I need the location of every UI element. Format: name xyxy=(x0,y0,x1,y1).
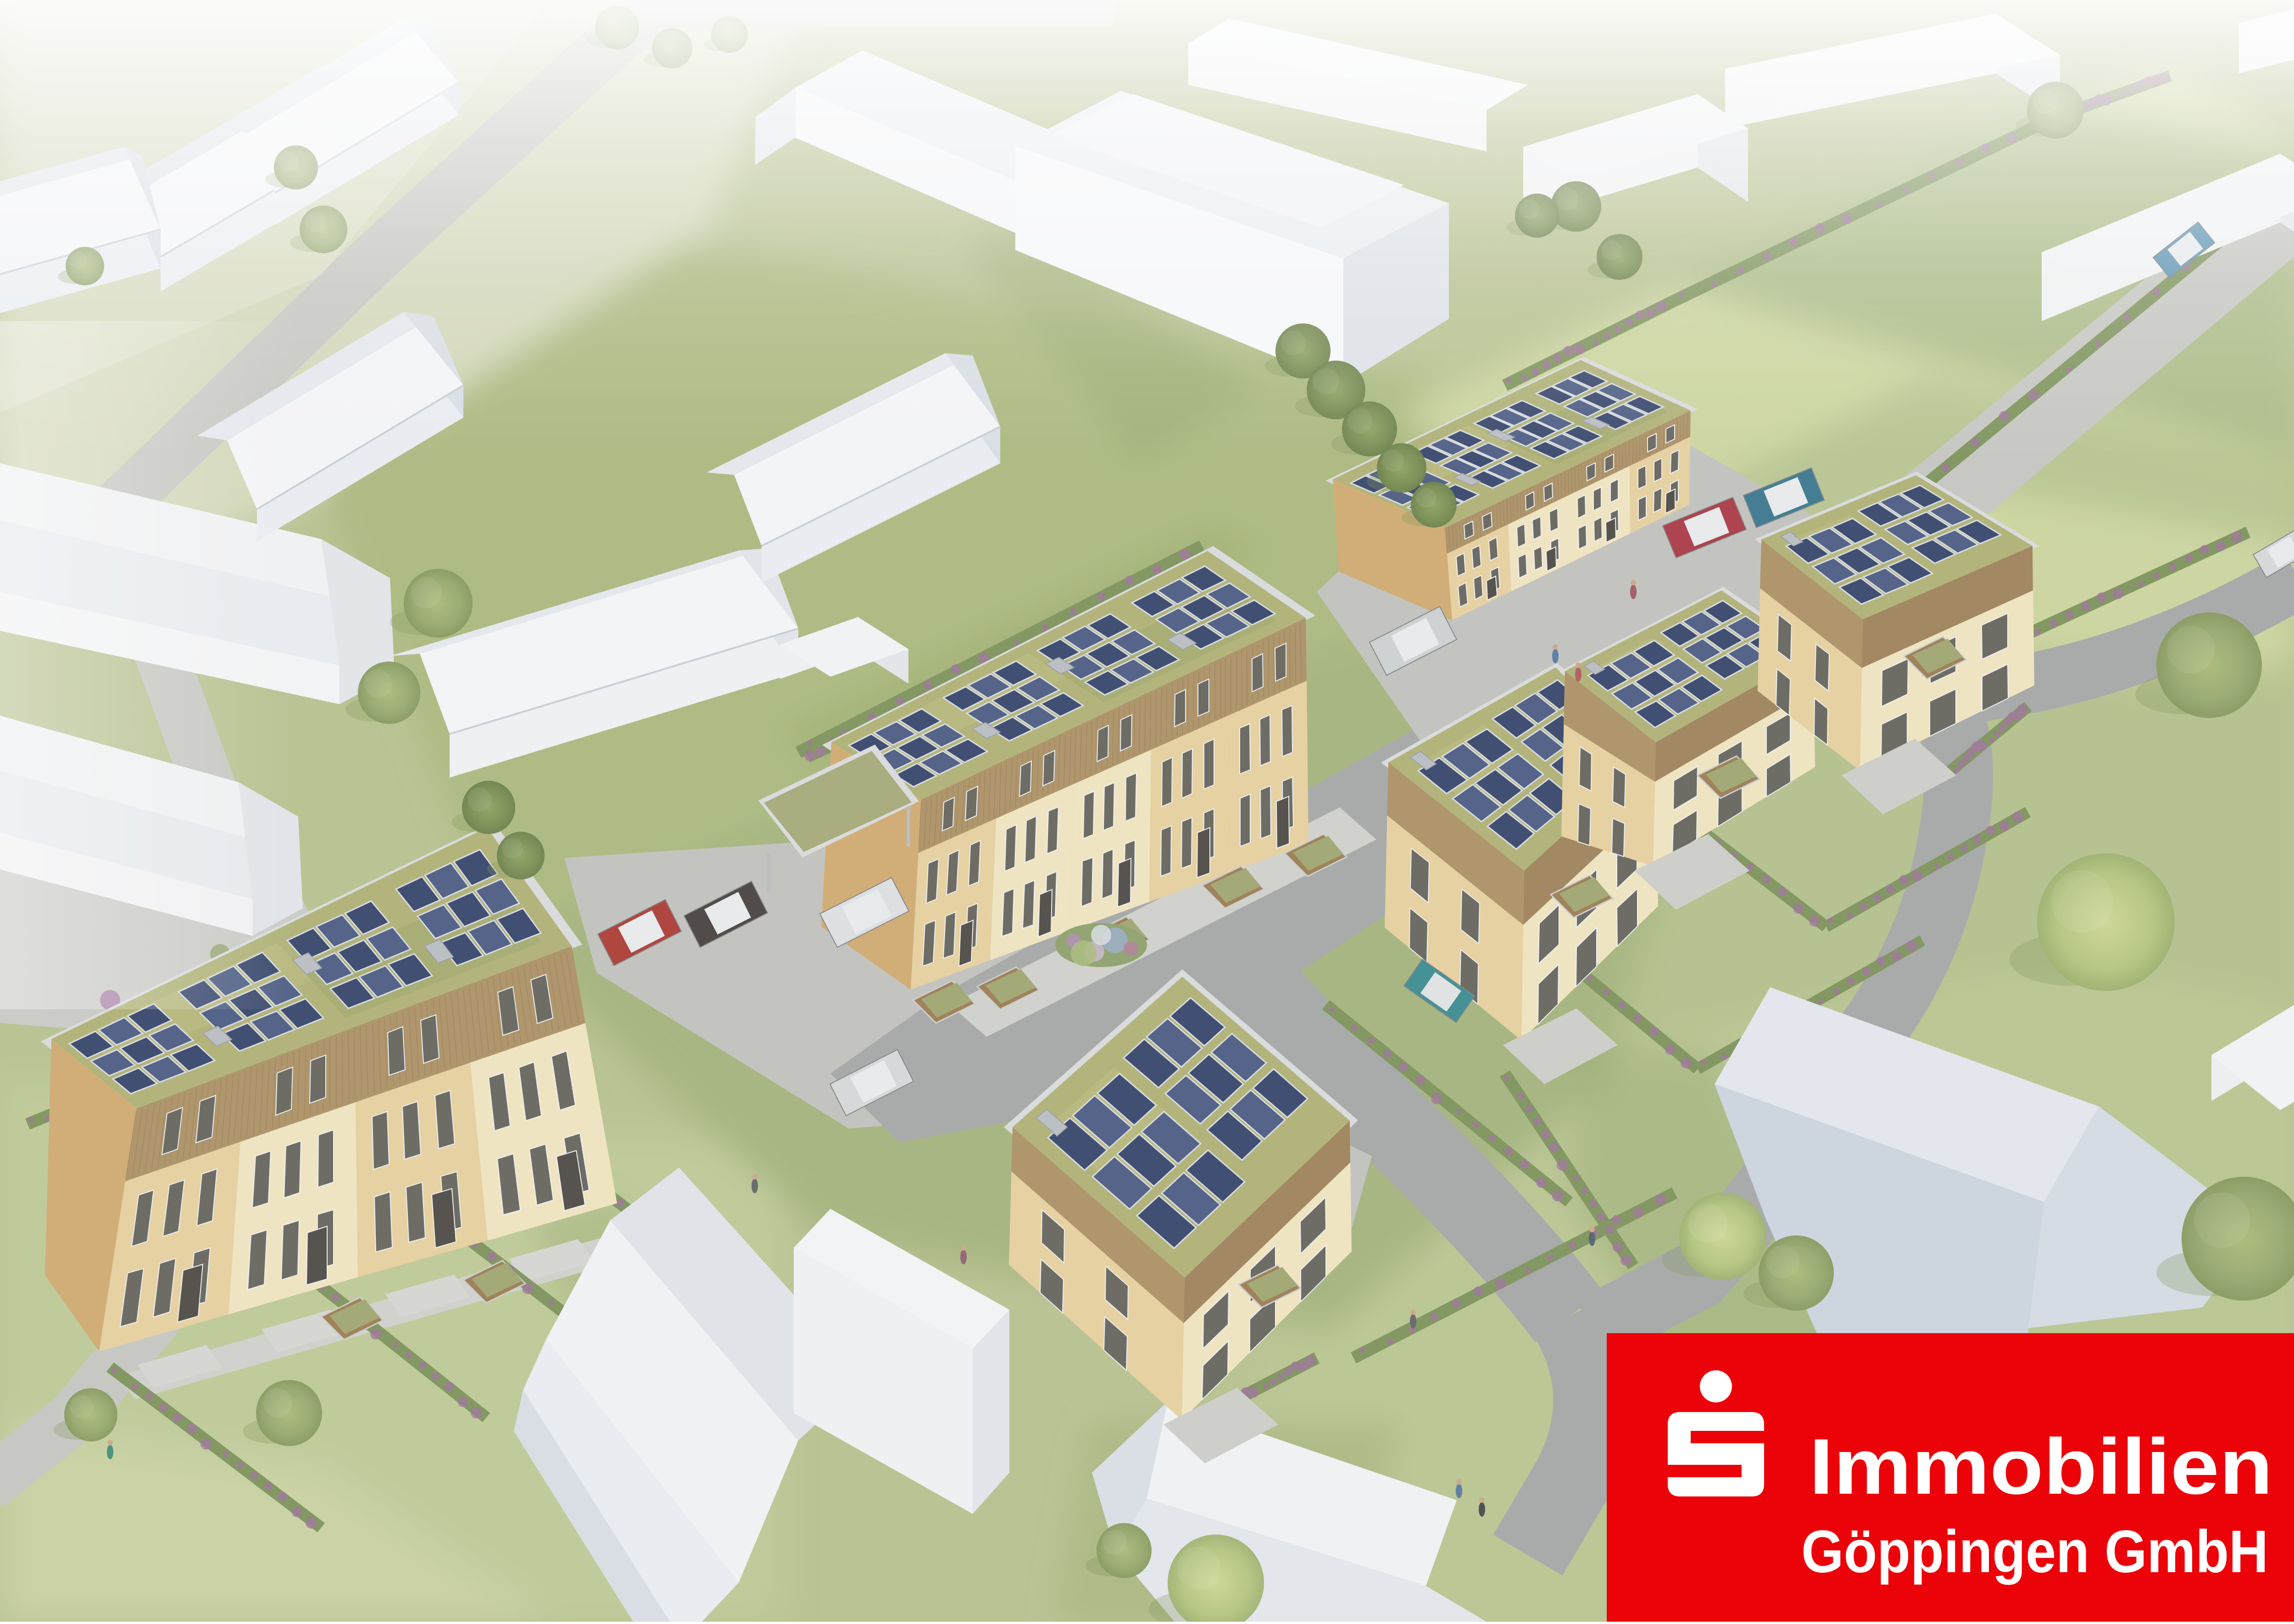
svg-text:Göppingen GmbH: Göppingen GmbH xyxy=(1801,1518,2268,1585)
svg-text:Immobilien: Immobilien xyxy=(1809,1423,2273,1511)
